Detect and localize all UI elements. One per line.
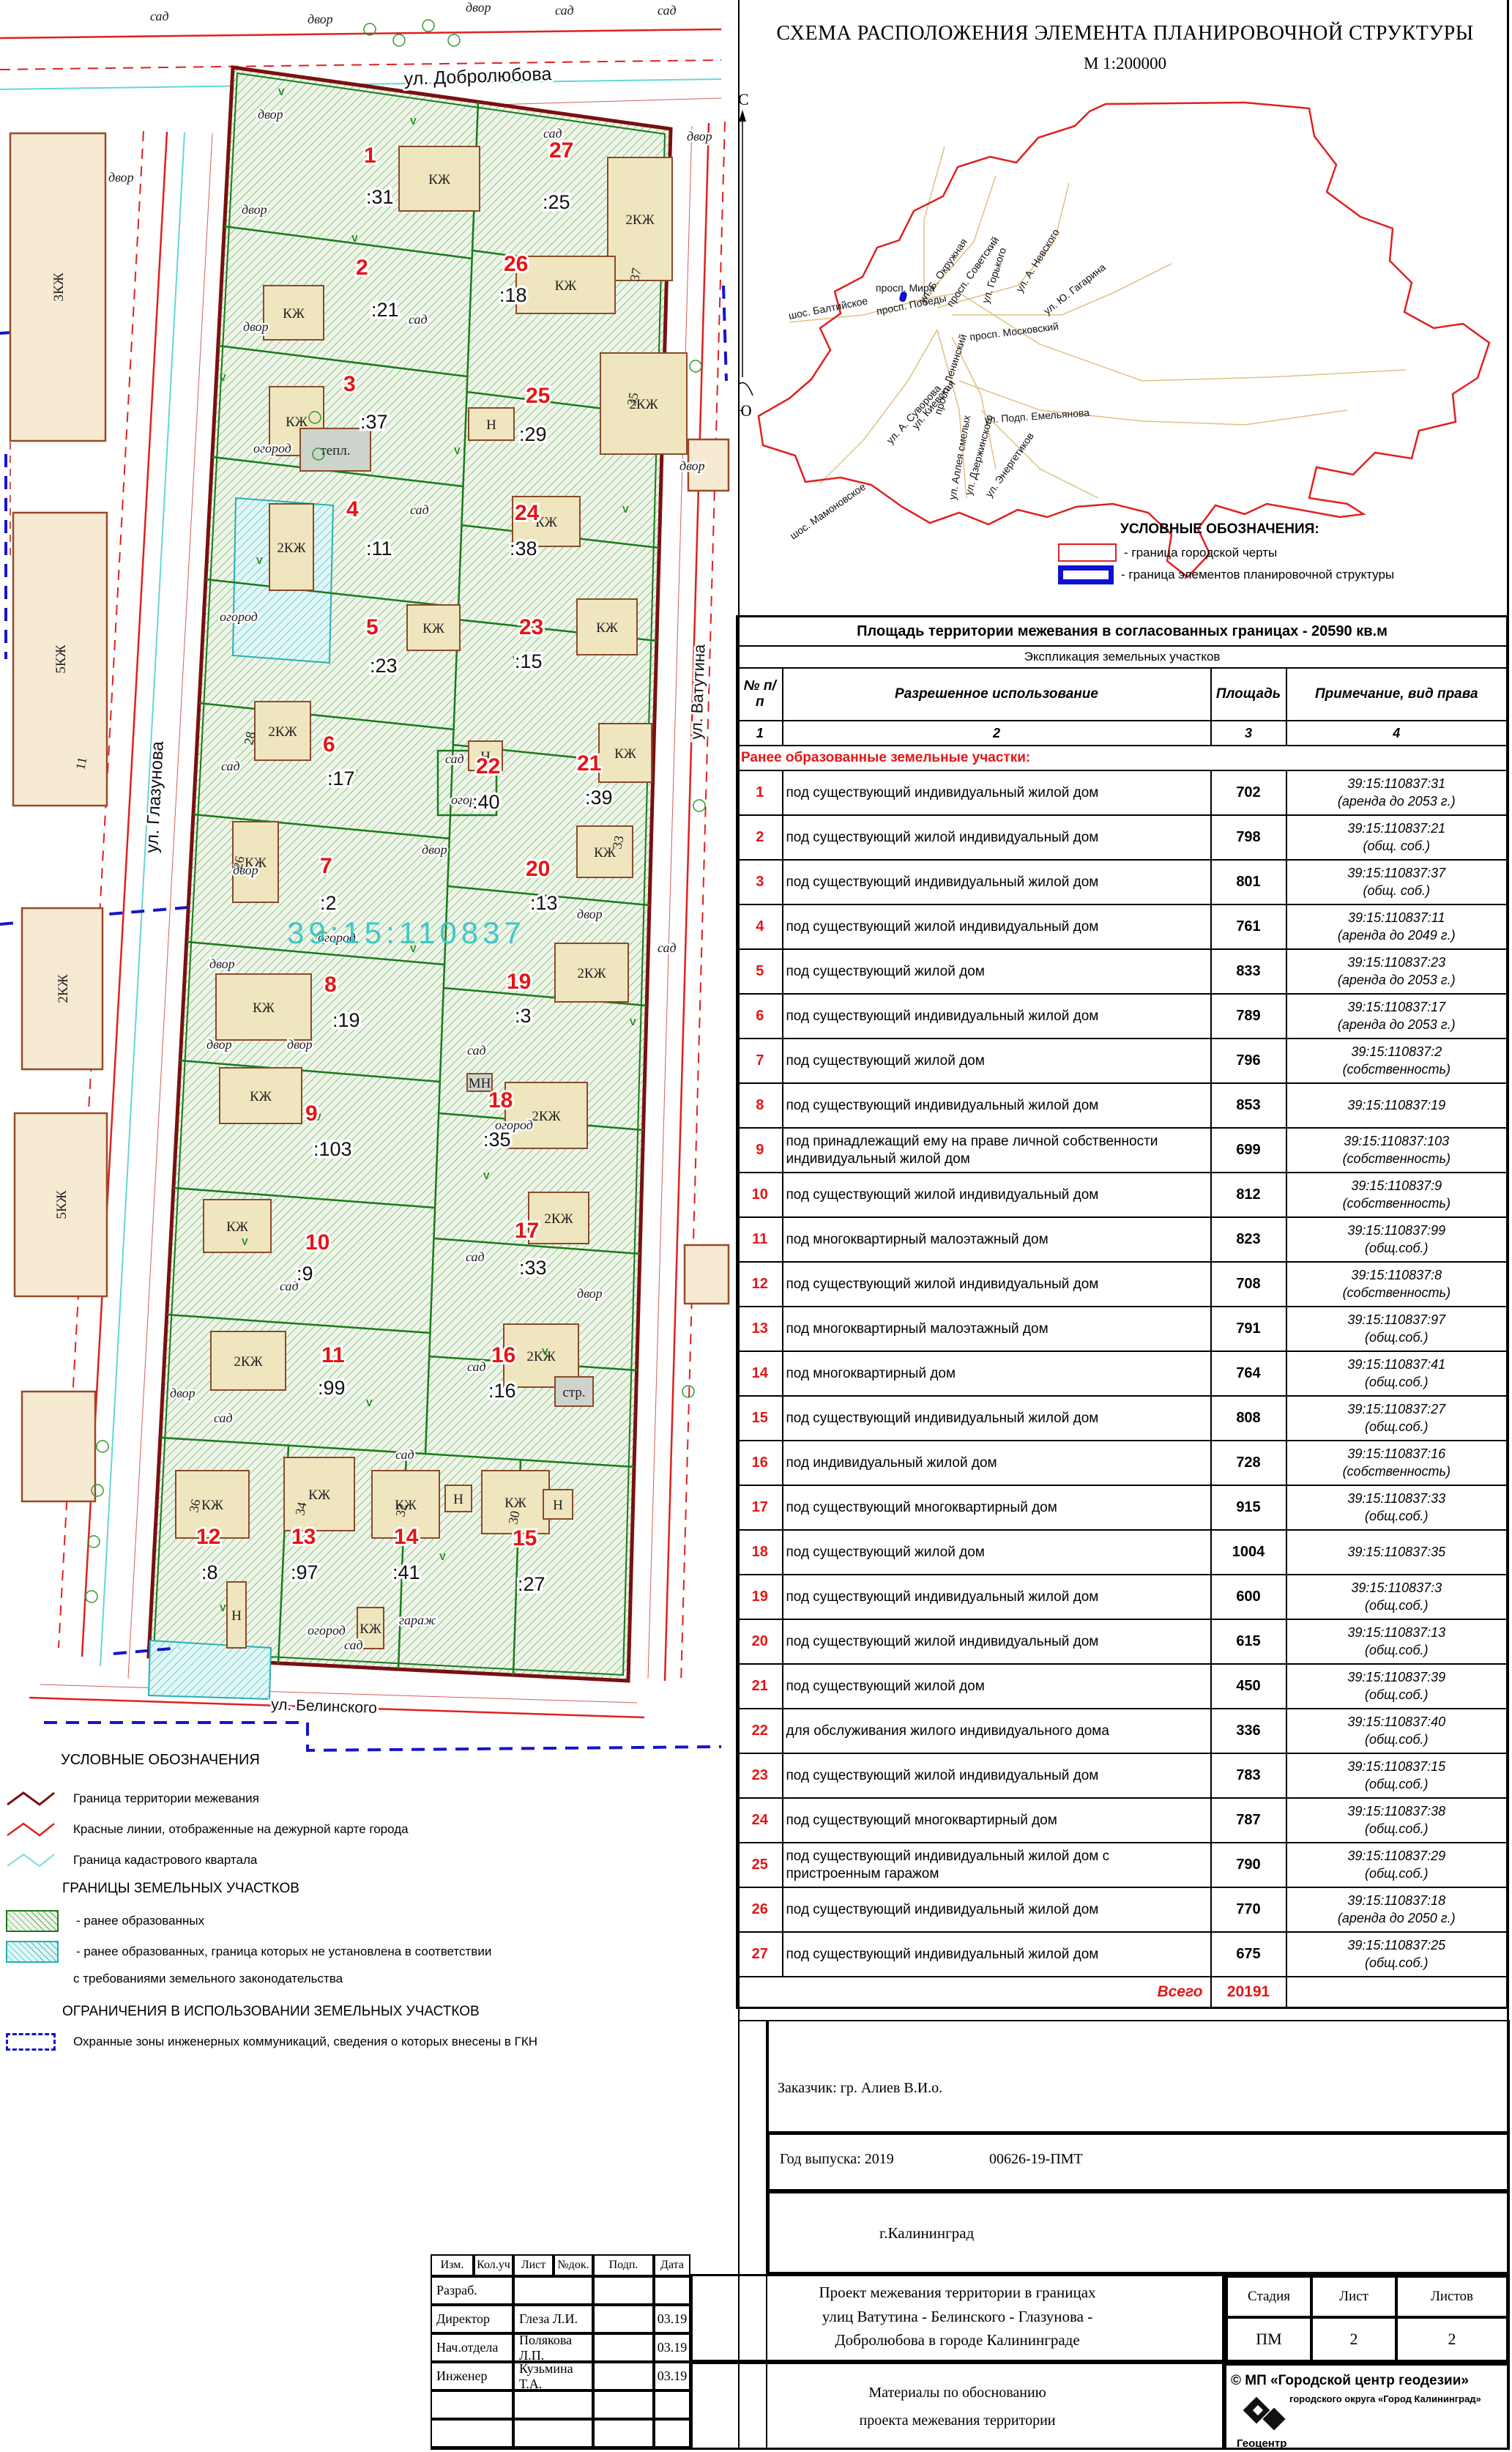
note-cadastral: 39:15:110837:25(общ.соб.): [1286, 1932, 1508, 1977]
building-label: КЖ: [250, 1089, 272, 1104]
building-label: КЖ: [555, 278, 578, 294]
doc-number: 00626-19-ПМТ: [989, 2151, 1083, 2168]
vegetation-mark-icon: V: [366, 1397, 373, 1408]
building-label: МН: [469, 1076, 491, 1091]
permitted-use: под существующий жилой дом: [783, 1039, 1211, 1083]
row-number: 24: [737, 1798, 783, 1843]
schema-street-label: ул. Энергетиков: [983, 430, 1036, 499]
note-cadastral: 39:15:110837:35: [1286, 1530, 1508, 1575]
table-subtitle: Экспликация земельных участков: [737, 646, 1508, 668]
land-use-label: двор: [170, 1386, 195, 1400]
gost-cell-role: [431, 2419, 513, 2448]
sheets-value: 2: [1396, 2317, 1508, 2361]
area-value: 728: [1211, 1441, 1286, 1485]
street-label-glazunova: ул. Глазунова: [142, 740, 168, 854]
gost-cell-podp: [593, 2305, 654, 2333]
gost-signature-block: Изм.Кол.учЛист№док.Подп.ДатаРазраб.Дирек…: [431, 2254, 690, 2450]
gost-cell-name: [513, 2419, 593, 2448]
vegetation-mark-icon: V: [220, 1602, 226, 1613]
land-use-label: двор: [206, 1037, 232, 1052]
permitted-use: под существующий жилой дом: [783, 1664, 1211, 1709]
parcel-number-label: 4: [346, 497, 359, 521]
land-use-label: сад: [344, 1638, 363, 1652]
sheet: 3КЖ5КЖ2КЖ5КЖКЖ2КЖКЖКЖКЖ2КЖНтепл.2КЖКЖКЖК…: [0, 0, 1512, 2452]
land-use-label: двор: [258, 107, 283, 122]
gost-cell-podp: [593, 2276, 654, 2305]
parcel-number-label: 8: [324, 973, 337, 997]
materials-line: Материалы по обоснованию: [693, 2379, 1222, 2407]
area-value: 699: [1211, 1128, 1286, 1173]
land-use-label: сад: [658, 940, 677, 955]
legend-title: УСЛОВНЫЕ ОБОЗНАЧЕНИЯ: [61, 1752, 260, 1769]
permitted-use: под существующий жилой индивидуальный до…: [783, 1753, 1211, 1798]
parcel-table-row: 15под существующий индивидуальный жилой …: [737, 1396, 1508, 1441]
building-label: КЖ: [286, 415, 308, 430]
note-cadastral: 39:15:110837:103(собственность): [1286, 1128, 1508, 1173]
stage-header: Стадия: [1226, 2276, 1311, 2317]
city-building: [685, 1245, 729, 1304]
table-column-number: 4: [1286, 721, 1508, 746]
dark-red-zigzag-symbol: [6, 1788, 56, 1809]
vegetation-mark-icon: V: [278, 86, 285, 97]
permitted-use: для обслуживания жилого индивидуального …: [783, 1709, 1211, 1753]
parcel-number-label: 1: [364, 144, 376, 168]
land-use-label: сад: [214, 1411, 233, 1425]
land-use-label: сад: [280, 1279, 299, 1293]
note-cadastral: 39:15:110837:23(аренда до 2053 г.): [1286, 949, 1508, 994]
parcel-table-row: 21под существующий жилой дом45039:15:110…: [737, 1664, 1508, 1709]
year-label: Год выпуска: 2019: [780, 2151, 894, 2168]
table-column-number: 2: [783, 721, 1211, 746]
parcel-table-row: 6под существующий индивидуальный жилой д…: [737, 994, 1508, 1039]
schema-legend-title: УСЛОВНЫЕ ОБОЗНАЧЕНИЯ:: [1120, 521, 1319, 538]
building-label: КЖ: [504, 1496, 527, 1511]
building-label: 2КЖ: [625, 212, 655, 228]
tree-icon: [393, 34, 405, 46]
building-label: 5КЖ: [54, 1189, 70, 1219]
parcel-cadastral-suffix: :97: [291, 1561, 319, 1583]
permitted-use: под индивидуальный жилой дом: [783, 1441, 1211, 1485]
table-column-header: Площадь: [1211, 668, 1286, 721]
area-value: 783: [1211, 1753, 1286, 1798]
row-number: 1: [737, 770, 783, 815]
gost-cell-role: Нач.отдела: [431, 2333, 513, 2362]
city-label: г.Калининград: [879, 2224, 974, 2243]
materials-line: проекта межевания территории: [693, 2407, 1222, 2434]
permitted-use: под существующий индивидуальный жилой до…: [783, 1396, 1211, 1441]
land-use-label: двор: [209, 956, 235, 971]
land-use-label: огород: [220, 609, 258, 624]
land-use-label: двор: [422, 842, 447, 857]
land-use-label: двор: [108, 170, 134, 185]
note-cadastral: 39:15:110837:27(общ.соб.): [1286, 1396, 1508, 1441]
schema-street-label: шос. Балтийское: [788, 294, 869, 322]
row-number: 14: [737, 1351, 783, 1396]
vegetation-mark-icon: V: [483, 1170, 490, 1181]
land-use-label: сад: [409, 312, 428, 327]
legend-label: Граница кадастрового квартала: [73, 1853, 257, 1868]
building-label: Н: [486, 417, 496, 433]
svg-text:Ю: Ю: [738, 401, 752, 420]
parcel-number-label: 19: [507, 970, 531, 994]
sheet-value: 2: [1311, 2317, 1396, 2361]
gost-cell-podp: [593, 2333, 654, 2362]
land-use-label: двор: [687, 129, 712, 144]
note-cadastral: 39:15:110837:16(собственность): [1286, 1441, 1508, 1485]
legend-label: Охранные зоны инженерных коммуникаций, с…: [73, 2035, 537, 2049]
parcel-table-row: 26под существующий индивидуальный жилой …: [737, 1887, 1508, 1932]
row-number: 5: [737, 949, 783, 994]
permitted-use: под существующий индивидуальный жилой до…: [783, 860, 1211, 904]
area-value: 833: [1211, 949, 1286, 994]
permitted-use: под существующий индивидуальный жилой до…: [783, 994, 1211, 1039]
org-sub: городского округа «Город Калининград»: [1289, 2393, 1481, 2404]
land-use-label: сад: [466, 1249, 485, 1264]
schema-legend-item: - граница городской черты: [1058, 543, 1277, 562]
table-colnum-row: 1234: [737, 721, 1508, 746]
gost-header-cell: Лист: [513, 2254, 554, 2276]
schema-street-label: просп. Победы: [876, 292, 947, 317]
cyan-zigzag-symbol: [6, 1850, 56, 1870]
building-label: КЖ: [283, 306, 305, 322]
row-number: 7: [737, 1039, 783, 1083]
parcel-number-label: 2: [356, 256, 368, 280]
land-use-label: сад: [445, 751, 464, 766]
building-label: КЖ: [226, 1219, 249, 1235]
table-title: Площадь территории межевания в согласова…: [737, 617, 1508, 647]
parcel-cadastral-suffix: :13: [530, 892, 558, 914]
gost-cell-role: Директор: [431, 2305, 513, 2333]
parcel-table-row: 16под индивидуальный жилой дом72839:15:1…: [737, 1441, 1508, 1485]
parcel-number-label: 23: [519, 615, 543, 639]
gost-header-cell: Изм.: [431, 2254, 474, 2276]
building-label: 2КЖ: [56, 973, 71, 1003]
gost-cell-date: [654, 2419, 690, 2448]
permitted-use: под существующий жилой индивидуальный до…: [783, 815, 1211, 860]
permitted-use: под существующий жилой индивидуальный до…: [783, 1262, 1211, 1307]
legend-item: Красные линии, отображенные на дежурной …: [6, 1819, 409, 1840]
parcel-number-label: 27: [549, 138, 573, 163]
project-title-line: Проект межевания территории в границах: [693, 2281, 1222, 2305]
table-total-row: Всего 20191: [737, 1977, 1508, 2007]
note-cadastral: 39:15:110837:19: [1286, 1083, 1508, 1128]
parcel-cadastral-suffix: :31: [366, 186, 394, 208]
gost-cell-name: Кузьмина Т.А.: [513, 2362, 593, 2390]
row-number: 21: [737, 1664, 783, 1709]
building-label: 2КЖ: [268, 724, 297, 740]
tree-icon: [693, 800, 705, 811]
parcel-number-label: 22: [476, 754, 500, 779]
green-hatch-symbol: [6, 1910, 59, 1932]
project-title-line: Доброл­юбова в городе Калининграде: [693, 2328, 1222, 2352]
row-number: 19: [737, 1575, 783, 1619]
total-value: 20191: [1211, 1977, 1286, 2007]
building-label: КЖ: [614, 746, 637, 762]
area-value: 764: [1211, 1351, 1286, 1396]
gost-cell-date: [654, 2390, 690, 2419]
area-value: 450: [1211, 1664, 1286, 1709]
parcel-number-label: 13: [291, 1525, 316, 1549]
sheets-header: Листов: [1396, 2276, 1508, 2317]
area-value: 808: [1211, 1396, 1286, 1441]
building-label: 3КЖ: [51, 272, 67, 301]
gost-header-cell: Дата: [654, 2254, 690, 2276]
gost-cell-role: Инженер: [431, 2362, 513, 2390]
parcel-table-row: 18под существующий жилой дом100439:15:11…: [737, 1530, 1508, 1575]
tree-icon: [682, 1386, 694, 1397]
parcel-cadastral-suffix: :3: [515, 1005, 532, 1027]
parcel-number-label: 5: [366, 615, 379, 639]
row-number: 12: [737, 1262, 783, 1307]
building-label: 2КЖ: [234, 1354, 263, 1370]
building-label: КЖ: [596, 620, 619, 636]
row-number: 3: [737, 860, 783, 904]
land-use-label: сад: [555, 3, 574, 18]
permitted-use: под многоквартирный малоэтажный дом: [783, 1307, 1211, 1351]
building-label: КЖ: [422, 621, 445, 636]
tree-icon: [422, 20, 434, 31]
parcel-number-label: 20: [526, 857, 550, 881]
parcel-table-row: 9под принадлежащий ему на праве личной с…: [737, 1128, 1508, 1173]
building-label: Н: [453, 1492, 463, 1507]
note-cadastral: 39:15:110837:41(общ.соб.): [1286, 1351, 1508, 1396]
area-value: 790: [1211, 1843, 1286, 1887]
row-number: 20: [737, 1619, 783, 1664]
stage-value: ПМ: [1226, 2317, 1311, 2361]
parcel-cadastral-suffix: :8: [201, 1561, 218, 1583]
street-label-dobrolyubova: ул. Добролюбова: [403, 64, 552, 89]
legend-label: - ранее образованных: [76, 1914, 204, 1928]
schema-legend-item: - граница элементов планировочной структ…: [1058, 565, 1394, 584]
location-schema: СХЕМА РАСПОЛОЖЕНИЯ ЭЛЕМЕНТА ПЛАНИРОВОЧНО…: [738, 0, 1512, 595]
note-cadastral: 39:15:110837:37(общ. соб.): [1286, 860, 1508, 904]
parcel-cadastral-suffix: :33: [519, 1257, 547, 1279]
parcel-table-row: 22для обслуживания жилого индивидуальног…: [737, 1709, 1508, 1753]
parcel-table-row: 5под существующий жилой дом83339:15:1108…: [737, 949, 1508, 994]
building-label: КЖ: [308, 1487, 331, 1503]
parcel-table-row: 25под существующий индивидуальный жилой …: [737, 1843, 1508, 1887]
parcel-cadastral-suffix: :21: [371, 299, 399, 321]
gost-cell-podp: [593, 2362, 654, 2390]
area-value: 801: [1211, 860, 1286, 904]
area-value: 823: [1211, 1217, 1286, 1262]
permitted-use: под существующий жилой индивидуальный до…: [783, 1173, 1211, 1217]
note-cadastral: 39:15:110837:8(собственность): [1286, 1262, 1508, 1307]
vegetation-mark-icon: V: [439, 1551, 446, 1562]
permitted-use: под существующий многоквартирный дом: [783, 1798, 1211, 1843]
row-number: 13: [737, 1307, 783, 1351]
gost-header-cell: №док.: [554, 2254, 593, 2276]
building-label: 2КЖ: [577, 966, 606, 981]
parcel-table-row: 24под существующий многоквартирный дом78…: [737, 1798, 1508, 1843]
area-value: 761: [1211, 904, 1286, 949]
parcel-cadastral-suffix: :25: [543, 191, 570, 213]
gost-cell-name: Глеза Л.И.: [513, 2305, 593, 2333]
materials-box: Материалы по обоснованию проекта межеван…: [690, 2362, 1224, 2450]
note-cadastral: 39:15:110837:97(общ.соб.): [1286, 1307, 1508, 1351]
table-section-header: Ранее образованные земельные участки:: [737, 746, 1508, 770]
land-use-label: двор: [466, 0, 491, 15]
parcel-table-row: 12под существующий жилой индивидуальный …: [737, 1262, 1508, 1307]
parcel-cadastral-suffix: :17: [327, 768, 355, 790]
vegetation-mark-icon: V: [630, 1017, 636, 1028]
area-value: 787: [1211, 1798, 1286, 1843]
city-building: [22, 1392, 95, 1501]
parcel-number-label: 9: [305, 1101, 318, 1126]
vegetation-mark-icon: V: [410, 116, 417, 127]
project-title-box: Проект межевания территории в границах у…: [690, 2274, 1224, 2362]
gost-cell-name: [513, 2390, 593, 2419]
note-cadastral: 39:15:110837:13(общ.соб.): [1286, 1619, 1508, 1664]
building-label: Н: [553, 1498, 563, 1513]
cadastral-map: 3КЖ5КЖ2КЖ5КЖКЖ2КЖКЖКЖКЖ2КЖНтепл.2КЖКЖКЖК…: [0, 0, 738, 1752]
permitted-use: под существующий жилой индивидуальный до…: [783, 1619, 1211, 1664]
schema-legend-label: - граница элементов планировочной структ…: [1121, 568, 1394, 582]
building-label: 5КЖ: [53, 644, 69, 673]
row-number: 25: [737, 1843, 783, 1887]
note-cadastral: 39:15:110837:21(общ. соб.): [1286, 815, 1508, 860]
svg-text:С: С: [738, 90, 749, 108]
permitted-use: под многоквартирный малоэтажный дом: [783, 1217, 1211, 1262]
city-border-symbol: [1058, 543, 1117, 562]
legend-label: Граница территории межевания: [73, 1791, 259, 1806]
legend-label: Красные линии, отображенные на дежурной …: [73, 1822, 409, 1837]
area-value: 702: [1211, 770, 1286, 815]
parcel-table-row: 17под существующий многоквартирный дом91…: [737, 1485, 1508, 1530]
schema-street-label: шос. Мамоновское: [788, 480, 868, 541]
parcel-number-label: 6: [323, 732, 335, 757]
parcel-table-row: 2под существующий жилой индивидуальный д…: [737, 815, 1508, 860]
customer-box: Заказчик: гр. Алиев В.И.о.: [767, 2020, 1510, 2133]
row-number: 6: [737, 994, 783, 1039]
street-label-vatutina: ул. Ватутина: [687, 644, 709, 740]
schema-street-label: ул. Ю. Гагарина: [1041, 261, 1108, 316]
total-label: Всего: [737, 1977, 1211, 2007]
land-use-label: двор: [287, 1037, 313, 1052]
vegetation-mark-icon: V: [351, 233, 358, 244]
vegetation-mark-icon: V: [622, 504, 629, 515]
parcel-number-label: 16: [491, 1343, 515, 1367]
parcel-table-row: 8под существующий индивидуальный жилой д…: [737, 1083, 1508, 1128]
table-header-row: № п/пРазрешенное использованиеПлощадьПри…: [737, 668, 1508, 721]
schema-legend-label: - граница городской черты: [1124, 546, 1277, 560]
building-label: тепл.: [320, 443, 350, 458]
org-box: © МП «Городской центр геодезии» городско…: [1224, 2363, 1510, 2450]
note-cadastral: 39:15:110837:40(общ.соб.): [1286, 1709, 1508, 1753]
customer-label: Заказчик: гр. Алиев В.И.о.: [769, 2021, 1508, 2097]
area-value: 1004: [1211, 1530, 1286, 1575]
street-label-belinskogo: ул. Белинского: [271, 1696, 378, 1717]
gost-header-cell: Кол.уч: [474, 2254, 513, 2276]
schema-map: С Ю: [738, 0, 1512, 595]
parcel-table-row: 4под существующий жилой индивидуальный д…: [737, 904, 1508, 949]
building-label: КЖ: [360, 1621, 382, 1637]
parcel-cadastral-suffix: :103: [313, 1138, 352, 1160]
building-label: Н: [231, 1608, 242, 1624]
building-label: КЖ: [428, 172, 451, 187]
land-use-label: двор: [242, 202, 267, 217]
land-use-label: сад: [395, 1447, 414, 1462]
project-title-line: улиц Ватутина - Белинского - Глазунова -: [693, 2305, 1222, 2329]
land-use-label: сад: [410, 502, 429, 517]
row-number: 18: [737, 1530, 783, 1575]
legend-label: с требованиями земельного законодательст…: [73, 1972, 343, 1986]
planning-element-border-symbol: [1058, 565, 1114, 584]
parcel-number-label: 14: [394, 1525, 419, 1549]
area-value: 708: [1211, 1262, 1286, 1307]
compass: С Ю: [738, 90, 753, 420]
gost-header-cell: Подп.: [593, 2254, 654, 2276]
area-value: 770: [1211, 1887, 1286, 1932]
permitted-use: под существующий индивидуальный жилой до…: [783, 1843, 1211, 1887]
building-label: 2КЖ: [277, 540, 306, 556]
parcel-table-row: 19под существующий индивидуальный жилой …: [737, 1575, 1508, 1619]
note-cadastral: 39:15:110837:33(общ.соб.): [1286, 1485, 1508, 1530]
parcel-number-label: 10: [305, 1230, 329, 1255]
red-zigzag-symbol: [6, 1819, 56, 1840]
row-number: 22: [737, 1709, 783, 1753]
parcel-number-label: 15: [513, 1526, 537, 1550]
parcel-cadastral-suffix: :37: [360, 411, 388, 433]
gost-cell-name: Полякова Л.П.: [513, 2333, 593, 2362]
gost-cell-date: 03.19: [654, 2305, 690, 2333]
permitted-use: под существующий жилой дом: [783, 949, 1211, 994]
area-value: 798: [1211, 815, 1286, 860]
note-cadastral: 39:15:110837:9(собственность): [1286, 1173, 1508, 1217]
land-use-label: гараж: [399, 1613, 436, 1627]
note-cadastral: 39:15:110837:99(общ.соб.): [1286, 1217, 1508, 1262]
land-use-label: огород: [253, 441, 291, 456]
land-use-label: сад: [150, 9, 169, 23]
legend-subtitle-limits: ОГРАНИЧЕНИЯ В ИСПОЛЬЗОВАНИИ ЗЕМЕЛЬНЫХ УЧ…: [62, 2004, 480, 2020]
gost-cell-date: [654, 2276, 690, 2305]
permitted-use: под существующий индивидуальный жилой до…: [783, 1932, 1211, 1977]
parcel-number-label: 25: [526, 384, 550, 408]
gost-cell-role: Разраб.: [431, 2276, 513, 2305]
parcel-cadastral-suffix: :39: [585, 787, 613, 809]
vegetation-mark-icon: V: [256, 555, 263, 566]
gost-cell-role: [431, 2390, 513, 2419]
tree-icon: [97, 1441, 108, 1452]
permitted-use: под существующий индивидуальный жилой до…: [783, 1887, 1211, 1932]
parcel-cadastral-suffix: :29: [519, 423, 547, 445]
stage-box: Стадия Лист Листов ПМ 2 2: [1224, 2274, 1510, 2363]
table-column-number: 1: [737, 721, 783, 746]
parcel-number-label: 7: [320, 854, 332, 878]
table-column-header: Примечание, вид права: [1286, 668, 1508, 721]
parcel-cadastral-suffix: :35: [483, 1129, 511, 1151]
parcel-table-row: 11под многоквартирный малоэтажный дом823…: [737, 1217, 1508, 1262]
parcel-number-label: 24: [515, 501, 540, 525]
note-cadastral: 39:15:110837:31(аренда до 2053 г.): [1286, 770, 1508, 815]
parcel-table-row: 3под существующий индивидуальный жилой д…: [737, 860, 1508, 904]
permitted-use: под существующий многоквартирный дом: [783, 1485, 1211, 1530]
area-value: 615: [1211, 1619, 1286, 1664]
vegetation-mark-icon: V: [542, 1346, 548, 1357]
cyan-hatch-symbol: [6, 1941, 59, 1963]
parcel-number-label: 12: [196, 1525, 220, 1549]
land-use-label: двор: [243, 319, 269, 334]
area-value: 853: [1211, 1083, 1286, 1128]
org-logo-text: Геоцентр: [1237, 2437, 1286, 2450]
legend-subtitle-parcels: ГРАНИЦЫ ЗЕМЕЛЬНЫХ УЧАСТКОВ: [62, 1881, 299, 1897]
vegetation-mark-icon: V: [220, 372, 226, 383]
parcel-cadastral-suffix: :15: [515, 650, 543, 672]
blue-dashed-symbol: [6, 2033, 56, 2051]
parcel-table-row: 1под существующий индивидуальный жилой д…: [737, 770, 1508, 815]
row-number: 4: [737, 904, 783, 949]
parcel-cadastral-suffix: :27: [518, 1573, 545, 1595]
